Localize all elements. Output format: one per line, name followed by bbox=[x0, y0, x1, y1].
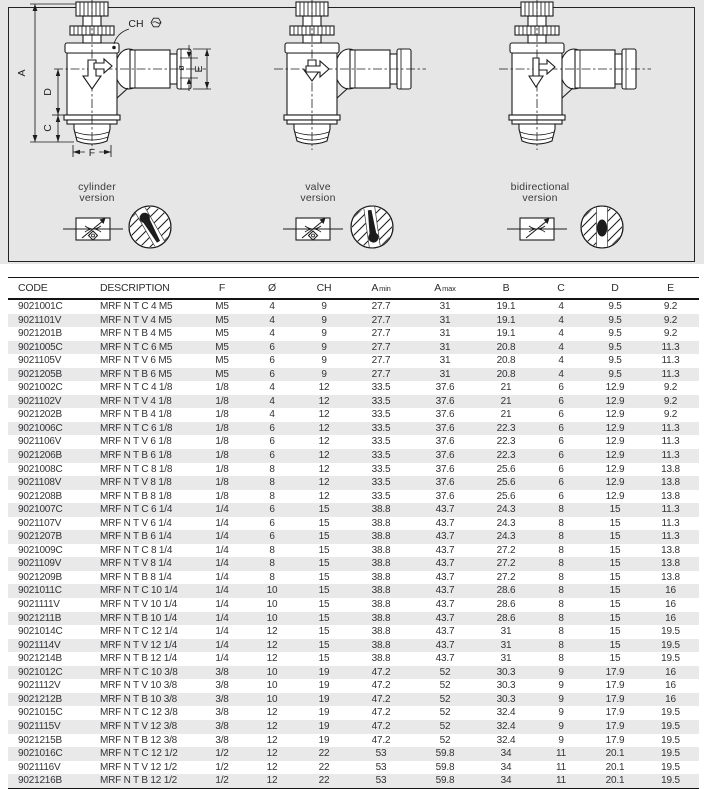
column-header: DESCRIPTION bbox=[100, 282, 198, 294]
cell: 8 bbox=[534, 639, 588, 653]
cell: 12 bbox=[246, 734, 298, 748]
cell: 38.8 bbox=[350, 625, 412, 639]
dimension-C: C bbox=[42, 115, 60, 142]
table-row: 9021112VMRF N T V 10 3/83/8101947.25230.… bbox=[8, 679, 699, 693]
cell: 6 bbox=[534, 463, 588, 477]
column-header: Amin bbox=[350, 282, 412, 294]
cell: 20.8 bbox=[478, 368, 534, 382]
cell: 15 bbox=[588, 517, 642, 531]
cell: 9021106V bbox=[8, 435, 100, 449]
cell: 16 bbox=[642, 584, 699, 598]
cell: 19.5 bbox=[642, 747, 699, 761]
cell: 9.2 bbox=[642, 300, 699, 314]
cell: 13.8 bbox=[642, 476, 699, 490]
cell: 6 bbox=[534, 381, 588, 395]
cell: 6 bbox=[534, 435, 588, 449]
cell: 1/2 bbox=[198, 747, 246, 761]
cell: 34 bbox=[478, 774, 534, 788]
table-row: 9021011CMRF N T C 10 1/41/4101538.843.72… bbox=[8, 584, 699, 598]
cell: M5 bbox=[198, 354, 246, 368]
cell: 9021206B bbox=[8, 449, 100, 463]
cell: 38.8 bbox=[350, 598, 412, 612]
cell: 21 bbox=[478, 395, 534, 409]
cell: 4 bbox=[534, 341, 588, 355]
cell: 9021011C bbox=[8, 584, 100, 598]
cell: 19 bbox=[298, 706, 350, 720]
table-row: 9021007CMRF N T C 6 1/41/461538.843.724.… bbox=[8, 503, 699, 517]
cell: M5 bbox=[198, 300, 246, 314]
cell: 9021205B bbox=[8, 368, 100, 382]
cell: 37.6 bbox=[412, 463, 478, 477]
cell: 9 bbox=[298, 327, 350, 341]
cell: 9021101V bbox=[8, 314, 100, 328]
cell: 6 bbox=[246, 449, 298, 463]
cell: 59.8 bbox=[412, 761, 478, 775]
table-row: 9021208BMRF N T B 8 1/81/881233.537.625.… bbox=[8, 490, 699, 504]
cell: MRF N T B 6 1/8 bbox=[100, 449, 198, 463]
cell: 13.8 bbox=[642, 571, 699, 585]
table-row: 9021005CMRF N T C 6 M5M56927.73120.849.5… bbox=[8, 341, 699, 355]
cell: 4 bbox=[534, 300, 588, 314]
cell: 19.5 bbox=[642, 720, 699, 734]
cell: 24.3 bbox=[478, 517, 534, 531]
table-header: CODEDESCRIPTIONFØCHAminAmaxBCDE bbox=[8, 277, 699, 300]
specification-table: CODEDESCRIPTIONFØCHAminAmaxBCDE 9021001C… bbox=[8, 277, 699, 789]
cell: 33.5 bbox=[350, 463, 412, 477]
cell: 19.5 bbox=[642, 761, 699, 775]
cell: 28.6 bbox=[478, 584, 534, 598]
cell: 43.7 bbox=[412, 584, 478, 598]
cell: 15 bbox=[298, 530, 350, 544]
cell: 9 bbox=[298, 354, 350, 368]
cell: 9021008C bbox=[8, 463, 100, 477]
cell: MRF N T B 12 1/4 bbox=[100, 652, 198, 666]
cell: 43.7 bbox=[412, 639, 478, 653]
cell: 8 bbox=[246, 476, 298, 490]
cell: 1/4 bbox=[198, 503, 246, 517]
version-label-valve: valve version bbox=[300, 182, 335, 204]
cell: 12 bbox=[246, 761, 298, 775]
cell: 20.8 bbox=[478, 354, 534, 368]
cell: 1/4 bbox=[198, 598, 246, 612]
cell: 10 bbox=[246, 666, 298, 680]
cell: 8 bbox=[534, 598, 588, 612]
cell: 9.2 bbox=[642, 381, 699, 395]
cell: 1/4 bbox=[198, 530, 246, 544]
cell: 19.5 bbox=[642, 625, 699, 639]
cell: 11.3 bbox=[642, 354, 699, 368]
cell: 33.5 bbox=[350, 476, 412, 490]
dimension-label-ch: CH bbox=[128, 18, 143, 30]
cell: 19.5 bbox=[642, 706, 699, 720]
cell: 1/8 bbox=[198, 476, 246, 490]
cell: 6 bbox=[246, 354, 298, 368]
cell: 9021214B bbox=[8, 652, 100, 666]
cell: 15 bbox=[298, 625, 350, 639]
cell: 38.8 bbox=[350, 503, 412, 517]
table-row: 9021001CMRF N T C 4 M5M54927.73119.149.5… bbox=[8, 300, 699, 314]
cell: 27.7 bbox=[350, 354, 412, 368]
cell: 1/2 bbox=[198, 774, 246, 788]
dimension-label-f: F bbox=[89, 147, 95, 159]
column-header: C bbox=[534, 282, 588, 294]
cell: 8 bbox=[534, 625, 588, 639]
cell: MRF N T C 10 1/4 bbox=[100, 584, 198, 598]
cell: 1/4 bbox=[198, 625, 246, 639]
cell: 37.6 bbox=[412, 490, 478, 504]
cell: 12 bbox=[298, 463, 350, 477]
cell: 4 bbox=[246, 300, 298, 314]
cell: 1/8 bbox=[198, 408, 246, 422]
table-row: 9021202BMRF N T B 4 1/81/841233.537.6216… bbox=[8, 408, 699, 422]
table-row: 9021002CMRF N T C 4 1/81/841233.537.6216… bbox=[8, 381, 699, 395]
cell: 27.2 bbox=[478, 557, 534, 571]
cell: 9021005C bbox=[8, 341, 100, 355]
cell: 43.7 bbox=[412, 544, 478, 558]
table-row: 9021212BMRF N T B 10 3/83/8101947.25230.… bbox=[8, 693, 699, 707]
cell: 31 bbox=[478, 625, 534, 639]
cell: 15 bbox=[588, 639, 642, 653]
cell: 12 bbox=[246, 774, 298, 788]
cell: 4 bbox=[246, 408, 298, 422]
cell: 3/8 bbox=[198, 720, 246, 734]
cell: 4 bbox=[246, 327, 298, 341]
column-header: E bbox=[642, 282, 699, 294]
table-row: 9021205BMRF N T B 6 M5M56927.73120.849.5… bbox=[8, 368, 699, 382]
version-label-line2: version bbox=[78, 193, 116, 204]
cell: 28.6 bbox=[478, 598, 534, 612]
cell: 6 bbox=[534, 395, 588, 409]
cell: 32.4 bbox=[478, 734, 534, 748]
cell: 11 bbox=[534, 747, 588, 761]
cell: 8 bbox=[246, 544, 298, 558]
cell: MRF N T V 10 1/4 bbox=[100, 598, 198, 612]
version-label-line2: version bbox=[511, 193, 570, 204]
cell: 31 bbox=[412, 314, 478, 328]
cell: 6 bbox=[246, 530, 298, 544]
cell: 33.5 bbox=[350, 395, 412, 409]
cell: 9.2 bbox=[642, 327, 699, 341]
cell: MRF N T B 8 1/8 bbox=[100, 490, 198, 504]
cell: 20.1 bbox=[588, 774, 642, 788]
cell: 15 bbox=[588, 544, 642, 558]
cell: 3/8 bbox=[198, 679, 246, 693]
cell: 24.3 bbox=[478, 530, 534, 544]
cell: 12 bbox=[298, 422, 350, 436]
cell: 11.3 bbox=[642, 449, 699, 463]
cell: 10 bbox=[246, 679, 298, 693]
cell: M5 bbox=[198, 341, 246, 355]
cell: MRF N T B 12 3/8 bbox=[100, 734, 198, 748]
table-row: 9021201BMRF N T B 4 M5M54927.73119.149.5… bbox=[8, 327, 699, 341]
cell: 21 bbox=[478, 408, 534, 422]
cell: 12 bbox=[298, 435, 350, 449]
cell: 1/8 bbox=[198, 381, 246, 395]
cell: 30.3 bbox=[478, 679, 534, 693]
cell: 52 bbox=[412, 720, 478, 734]
cell: MRF N T C 6 1/4 bbox=[100, 503, 198, 517]
cell: 37.6 bbox=[412, 381, 478, 395]
cell: 12 bbox=[246, 639, 298, 653]
cell: 9021201B bbox=[8, 327, 100, 341]
cell: 22 bbox=[298, 774, 350, 788]
cell: 33.5 bbox=[350, 408, 412, 422]
cell: 17.9 bbox=[588, 734, 642, 748]
cell: 9021211B bbox=[8, 612, 100, 626]
cell: MRF N T C 4 1/8 bbox=[100, 381, 198, 395]
cell: 15 bbox=[298, 517, 350, 531]
cell: 9021007C bbox=[8, 503, 100, 517]
cell: 9021115V bbox=[8, 720, 100, 734]
cell: 10 bbox=[246, 612, 298, 626]
cell: M5 bbox=[198, 368, 246, 382]
cell: 47.2 bbox=[350, 706, 412, 720]
cell: 27.7 bbox=[350, 327, 412, 341]
cell: 6 bbox=[246, 341, 298, 355]
cell: 6 bbox=[534, 490, 588, 504]
cell: 1/4 bbox=[198, 517, 246, 531]
cell: 16 bbox=[642, 612, 699, 626]
dimension-label-e: E bbox=[193, 65, 205, 72]
cell: 33.5 bbox=[350, 449, 412, 463]
cell: 19 bbox=[298, 720, 350, 734]
knob-position-valve bbox=[340, 195, 404, 259]
cell: 8 bbox=[246, 571, 298, 585]
cell: 13.8 bbox=[642, 463, 699, 477]
table-row: 9021012CMRF N T C 10 3/83/8101947.25230.… bbox=[8, 666, 699, 680]
table-row: 9021014CMRF N T C 12 1/41/4121538.843.73… bbox=[8, 625, 699, 639]
dimension-label-d: D bbox=[42, 88, 54, 96]
cell: 9021002C bbox=[8, 381, 100, 395]
cell: 43.7 bbox=[412, 530, 478, 544]
cell: 9021215B bbox=[8, 734, 100, 748]
cell: 9021208B bbox=[8, 490, 100, 504]
cell: 12 bbox=[298, 449, 350, 463]
cell: 53 bbox=[350, 761, 412, 775]
cell: 3/8 bbox=[198, 734, 246, 748]
version-label-cylinder: cylinder version bbox=[78, 182, 116, 204]
cell: 9021212B bbox=[8, 693, 100, 707]
knob-position-cylinder bbox=[118, 195, 182, 259]
cell: MRF N T B 6 M5 bbox=[100, 368, 198, 382]
cell: 43.7 bbox=[412, 652, 478, 666]
cell: 12 bbox=[298, 408, 350, 422]
cell: 38.8 bbox=[350, 652, 412, 666]
cell: 1/8 bbox=[198, 422, 246, 436]
cell: 9021107V bbox=[8, 517, 100, 531]
cell: 4 bbox=[246, 381, 298, 395]
cell: 37.6 bbox=[412, 435, 478, 449]
cell: 1/8 bbox=[198, 435, 246, 449]
cell: 9.2 bbox=[642, 314, 699, 328]
cell: 15 bbox=[588, 584, 642, 598]
cell: 1/8 bbox=[198, 463, 246, 477]
cell: MRF N T V 6 1/4 bbox=[100, 517, 198, 531]
cell: 9021114V bbox=[8, 639, 100, 653]
cell: 15 bbox=[298, 584, 350, 598]
cell: 16 bbox=[642, 598, 699, 612]
cell: 9021109V bbox=[8, 557, 100, 571]
cell: 28.6 bbox=[478, 612, 534, 626]
cell: 15 bbox=[298, 503, 350, 517]
cell: 9021015C bbox=[8, 706, 100, 720]
table-row: 9021107VMRF N T V 6 1/41/461538.843.724.… bbox=[8, 517, 699, 531]
cell: 9021102V bbox=[8, 395, 100, 409]
cell: 13.8 bbox=[642, 490, 699, 504]
cell: 11.3 bbox=[642, 422, 699, 436]
table-row: 9021105VMRF N T V 6 M5M56927.73120.849.5… bbox=[8, 354, 699, 368]
cell: 8 bbox=[534, 612, 588, 626]
cell: MRF N T C 12 1/4 bbox=[100, 625, 198, 639]
cell: 19 bbox=[298, 666, 350, 680]
cell: M5 bbox=[198, 327, 246, 341]
cell: 37.6 bbox=[412, 476, 478, 490]
cell: 31 bbox=[412, 341, 478, 355]
cell: 12.9 bbox=[588, 449, 642, 463]
cell: 52 bbox=[412, 666, 478, 680]
cell: 31 bbox=[478, 652, 534, 666]
hex-nut-icon bbox=[151, 18, 161, 27]
cell: 9 bbox=[534, 693, 588, 707]
column-header: CH bbox=[298, 282, 350, 294]
cell: 19 bbox=[298, 693, 350, 707]
cell: 52 bbox=[412, 679, 478, 693]
cell: MRF N T V 12 3/8 bbox=[100, 720, 198, 734]
cell: 38.8 bbox=[350, 517, 412, 531]
cell: 15 bbox=[298, 652, 350, 666]
column-header: CODE bbox=[8, 282, 100, 294]
cell: 11 bbox=[534, 761, 588, 775]
table-row: 9021109VMRF N T V 8 1/41/481538.843.727.… bbox=[8, 557, 699, 571]
cell: 9.2 bbox=[642, 408, 699, 422]
cell: 25.6 bbox=[478, 476, 534, 490]
cell: 43.7 bbox=[412, 571, 478, 585]
cell: 1/4 bbox=[198, 544, 246, 558]
cell: 11.3 bbox=[642, 517, 699, 531]
cell: 8 bbox=[534, 544, 588, 558]
cell: 9021216B bbox=[8, 774, 100, 788]
knob-position-bidirectional bbox=[570, 195, 634, 259]
cell: 37.6 bbox=[412, 449, 478, 463]
cell: 12 bbox=[246, 652, 298, 666]
cell: 20.8 bbox=[478, 341, 534, 355]
cell: 9021207B bbox=[8, 530, 100, 544]
cell: 24.3 bbox=[478, 503, 534, 517]
cell: 9021006C bbox=[8, 422, 100, 436]
cell: 12 bbox=[298, 490, 350, 504]
cell: 15 bbox=[588, 612, 642, 626]
cell: 3/8 bbox=[198, 706, 246, 720]
cell: 53 bbox=[350, 747, 412, 761]
cell: 9021016C bbox=[8, 747, 100, 761]
cell: 9021001C bbox=[8, 300, 100, 314]
cell: MRF N T B 12 1/2 bbox=[100, 774, 198, 788]
cell: 15 bbox=[298, 557, 350, 571]
table-row: 9021102VMRF N T V 4 1/81/841233.537.6216… bbox=[8, 395, 699, 409]
table-row: 9021214BMRF N T B 12 1/41/4121538.843.73… bbox=[8, 652, 699, 666]
cell: 6 bbox=[534, 449, 588, 463]
cell: 53 bbox=[350, 774, 412, 788]
cell: 9.5 bbox=[588, 327, 642, 341]
cell: 52 bbox=[412, 706, 478, 720]
cell: 10 bbox=[246, 598, 298, 612]
cell: 27.7 bbox=[350, 300, 412, 314]
cell: 8 bbox=[534, 530, 588, 544]
cell: 9021009C bbox=[8, 544, 100, 558]
cell: MRF N T C 10 3/8 bbox=[100, 666, 198, 680]
table-row: 9021009CMRF N T C 8 1/41/481538.843.727.… bbox=[8, 544, 699, 558]
cell: 12 bbox=[246, 747, 298, 761]
cell: 12 bbox=[246, 706, 298, 720]
cell: 52 bbox=[412, 734, 478, 748]
table-body: 9021001CMRF N T C 4 M5M54927.73119.149.5… bbox=[8, 300, 699, 788]
cell: 6 bbox=[534, 408, 588, 422]
cell: 4 bbox=[534, 327, 588, 341]
cell: 9.5 bbox=[588, 354, 642, 368]
cell: 43.7 bbox=[412, 503, 478, 517]
cell: 22.3 bbox=[478, 449, 534, 463]
cell: 4 bbox=[534, 354, 588, 368]
cell: 15 bbox=[588, 598, 642, 612]
cell: 1/4 bbox=[198, 571, 246, 585]
cell: 9021108V bbox=[8, 476, 100, 490]
dimension-label-diameter: ø bbox=[176, 65, 186, 71]
cell: 9 bbox=[298, 341, 350, 355]
cell: 17.9 bbox=[588, 693, 642, 707]
table-row: 9021108VMRF N T V 8 1/81/881233.537.625.… bbox=[8, 476, 699, 490]
cell: 10 bbox=[246, 693, 298, 707]
cell: 1/8 bbox=[198, 490, 246, 504]
cell: 8 bbox=[534, 584, 588, 598]
cell: 37.6 bbox=[412, 395, 478, 409]
ch-reference-dot bbox=[112, 46, 116, 50]
cell: 37.6 bbox=[412, 408, 478, 422]
cell: 25.6 bbox=[478, 490, 534, 504]
cell: 59.8 bbox=[412, 747, 478, 761]
version-label-line2: version bbox=[300, 193, 335, 204]
cell: MRF N T C 12 1/2 bbox=[100, 747, 198, 761]
cell: 43.7 bbox=[412, 625, 478, 639]
cell: 38.8 bbox=[350, 571, 412, 585]
cell: 20.1 bbox=[588, 747, 642, 761]
cell: 6 bbox=[246, 422, 298, 436]
cell: 31 bbox=[412, 368, 478, 382]
cell: 12 bbox=[246, 720, 298, 734]
cell: 19.1 bbox=[478, 314, 534, 328]
version-label-bidirectional: bidirectional version bbox=[511, 182, 570, 204]
cell: 38.8 bbox=[350, 530, 412, 544]
cell: 8 bbox=[246, 490, 298, 504]
cell: MRF N T V 10 3/8 bbox=[100, 679, 198, 693]
cell: MRF N T V 4 M5 bbox=[100, 314, 198, 328]
table-row: 9021008CMRF N T C 8 1/81/881233.537.625.… bbox=[8, 463, 699, 477]
cell: 47.2 bbox=[350, 693, 412, 707]
cell: MRF N T C 4 M5 bbox=[100, 300, 198, 314]
cell: 43.7 bbox=[412, 598, 478, 612]
dimension-E: E bbox=[193, 49, 211, 89]
cell: 22.3 bbox=[478, 435, 534, 449]
cell: 11 bbox=[534, 774, 588, 788]
cell: 12 bbox=[298, 476, 350, 490]
cell: 19.5 bbox=[642, 774, 699, 788]
cell: 9021202B bbox=[8, 408, 100, 422]
cell: 16 bbox=[642, 666, 699, 680]
cell: MRF N T B 6 1/4 bbox=[100, 530, 198, 544]
cell: MRF N T B 4 M5 bbox=[100, 327, 198, 341]
cell: 17.9 bbox=[588, 706, 642, 720]
table-row: 9021211BMRF N T B 10 1/41/4101538.843.72… bbox=[8, 612, 699, 626]
cell: 47.2 bbox=[350, 666, 412, 680]
